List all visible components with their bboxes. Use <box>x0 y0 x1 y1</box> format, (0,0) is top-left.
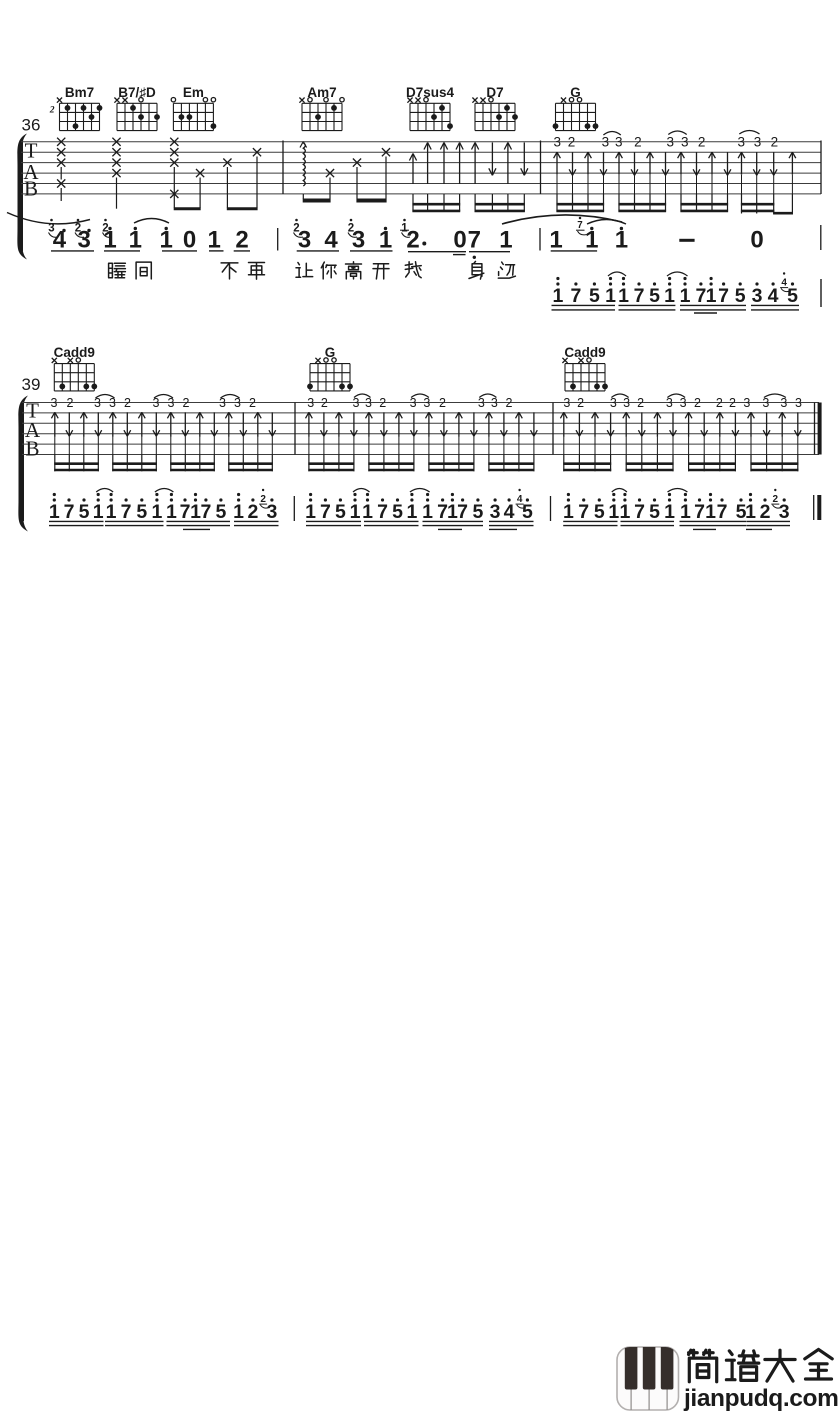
svg-text:7: 7 <box>121 501 132 523</box>
svg-text:3: 3 <box>680 396 687 410</box>
svg-text:Bm7: Bm7 <box>65 85 94 100</box>
svg-text:7: 7 <box>180 501 191 523</box>
svg-text:3: 3 <box>266 501 277 523</box>
svg-text:2: 2 <box>634 134 642 149</box>
svg-text:B: B <box>25 437 39 461</box>
svg-text:0: 0 <box>183 227 196 254</box>
svg-text:5: 5 <box>787 285 798 307</box>
svg-text:3: 3 <box>234 396 241 410</box>
svg-text:2: 2 <box>348 223 354 235</box>
svg-text:5: 5 <box>649 285 660 307</box>
svg-text:1: 1 <box>151 501 162 523</box>
svg-text:7: 7 <box>200 501 211 523</box>
svg-text:2: 2 <box>183 396 190 410</box>
svg-text:5: 5 <box>472 501 483 523</box>
svg-text:1: 1 <box>615 227 628 254</box>
svg-text:5: 5 <box>392 501 403 523</box>
svg-text:7: 7 <box>578 501 589 523</box>
svg-text:1: 1 <box>664 285 675 307</box>
svg-text:3: 3 <box>667 134 675 149</box>
svg-text:2: 2 <box>49 105 55 115</box>
svg-text:1: 1 <box>605 285 616 307</box>
svg-text:1: 1 <box>705 501 716 523</box>
svg-text:3: 3 <box>491 396 498 410</box>
svg-text:3: 3 <box>615 134 623 149</box>
svg-text:2: 2 <box>260 494 266 505</box>
svg-text:5: 5 <box>522 501 533 523</box>
svg-text:3: 3 <box>752 285 763 307</box>
svg-text:3: 3 <box>478 396 485 410</box>
svg-text:1: 1 <box>350 501 361 523</box>
svg-text:3: 3 <box>94 396 101 410</box>
svg-text:1: 1 <box>680 285 691 307</box>
svg-text:2: 2 <box>379 396 386 410</box>
svg-text:2: 2 <box>67 396 74 410</box>
svg-text:1: 1 <box>706 285 717 307</box>
svg-text:2: 2 <box>321 396 328 410</box>
svg-text:3: 3 <box>353 396 360 410</box>
svg-text:2: 2 <box>577 396 584 410</box>
svg-text:2: 2 <box>293 223 299 235</box>
svg-text:D7sus4: D7sus4 <box>406 85 455 100</box>
svg-text:7: 7 <box>320 501 331 523</box>
svg-text:2: 2 <box>771 134 779 149</box>
svg-text:3: 3 <box>779 501 790 523</box>
svg-text:3: 3 <box>780 396 787 410</box>
svg-text:5: 5 <box>136 501 147 523</box>
svg-text:3: 3 <box>795 396 802 410</box>
svg-text:Cadd9: Cadd9 <box>564 345 605 360</box>
svg-text:1: 1 <box>379 227 392 254</box>
svg-text:7: 7 <box>570 285 581 307</box>
svg-text:3: 3 <box>563 396 570 410</box>
svg-text:Em: Em <box>183 85 204 100</box>
svg-text:4: 4 <box>781 278 787 289</box>
svg-text:1: 1 <box>93 501 104 523</box>
svg-text:7: 7 <box>634 501 645 523</box>
svg-text:7: 7 <box>457 501 468 523</box>
svg-text:3: 3 <box>743 396 750 410</box>
svg-text:5: 5 <box>79 501 90 523</box>
svg-text:3: 3 <box>602 134 610 149</box>
svg-text:1: 1 <box>233 501 244 523</box>
svg-text:2: 2 <box>124 396 131 410</box>
svg-text:2: 2 <box>235 227 248 254</box>
svg-text:2: 2 <box>102 223 108 235</box>
svg-text:1: 1 <box>664 501 675 523</box>
svg-text:5: 5 <box>735 285 746 307</box>
svg-text:7: 7 <box>64 501 75 523</box>
svg-text:T: T <box>25 139 38 163</box>
svg-text:36: 36 <box>22 116 41 135</box>
svg-text:5: 5 <box>589 285 600 307</box>
svg-text:B7/♯D: B7/♯D <box>118 85 156 100</box>
svg-text:2: 2 <box>249 396 256 410</box>
svg-text:2: 2 <box>773 494 779 505</box>
svg-text:5: 5 <box>335 501 346 523</box>
svg-text:1: 1 <box>549 227 562 254</box>
svg-text:4: 4 <box>324 227 338 254</box>
svg-text:1: 1 <box>422 501 433 523</box>
svg-text:1: 1 <box>190 501 201 523</box>
svg-text:3: 3 <box>307 396 314 410</box>
svg-text:2: 2 <box>75 223 81 235</box>
svg-text:2: 2 <box>716 396 723 410</box>
svg-text:2: 2 <box>506 396 513 410</box>
svg-text:1: 1 <box>745 501 756 523</box>
svg-text:3: 3 <box>410 396 417 410</box>
svg-text:3: 3 <box>738 134 746 149</box>
svg-text:1: 1 <box>49 501 60 523</box>
svg-text:3: 3 <box>490 501 501 523</box>
svg-text:3: 3 <box>153 396 160 410</box>
svg-text:0: 0 <box>453 227 466 254</box>
svg-text:7: 7 <box>694 501 705 523</box>
svg-text:3: 3 <box>762 396 769 410</box>
svg-text:4: 4 <box>504 501 515 523</box>
svg-text:2: 2 <box>568 134 576 149</box>
svg-text:1: 1 <box>563 501 574 523</box>
svg-text:1: 1 <box>499 227 512 254</box>
svg-text:1: 1 <box>619 501 630 523</box>
svg-text:1: 1 <box>208 227 221 254</box>
svg-text:2: 2 <box>729 396 736 410</box>
svg-text:Cadd9: Cadd9 <box>54 345 95 360</box>
svg-text:3: 3 <box>51 396 58 410</box>
svg-text:1: 1 <box>106 501 117 523</box>
svg-text:0: 0 <box>750 227 763 254</box>
svg-text:2: 2 <box>694 396 701 410</box>
svg-text:3: 3 <box>365 396 372 410</box>
svg-text:1: 1 <box>680 501 691 523</box>
svg-text:B: B <box>24 177 38 201</box>
svg-text:7: 7 <box>377 501 388 523</box>
svg-text:1: 1 <box>585 227 598 254</box>
svg-text:1: 1 <box>305 501 316 523</box>
svg-text:2: 2 <box>247 501 258 523</box>
svg-text:3: 3 <box>168 396 175 410</box>
svg-text:3: 3 <box>610 396 617 410</box>
svg-text:1: 1 <box>618 285 629 307</box>
svg-text:D7: D7 <box>486 85 503 100</box>
svg-text:2: 2 <box>637 396 644 410</box>
svg-text:1: 1 <box>166 501 177 523</box>
svg-text:3: 3 <box>219 396 226 410</box>
svg-text:7: 7 <box>468 227 481 254</box>
svg-text:3: 3 <box>666 396 673 410</box>
svg-text:1: 1 <box>552 285 563 307</box>
svg-text:7: 7 <box>634 285 645 307</box>
svg-text:3: 3 <box>754 134 762 149</box>
svg-text:3: 3 <box>423 396 430 410</box>
svg-text:3: 3 <box>623 396 630 410</box>
svg-text:5: 5 <box>649 501 660 523</box>
svg-text:1: 1 <box>362 501 373 523</box>
svg-text:39: 39 <box>22 375 41 394</box>
svg-text:5: 5 <box>215 501 226 523</box>
svg-text:3: 3 <box>298 227 311 254</box>
svg-text:1: 1 <box>406 501 417 523</box>
svg-text:2: 2 <box>698 134 706 149</box>
svg-text:3: 3 <box>681 134 689 149</box>
svg-text:7: 7 <box>718 285 729 307</box>
svg-text:3: 3 <box>109 396 116 410</box>
svg-text:7: 7 <box>717 501 728 523</box>
svg-text:2: 2 <box>760 501 771 523</box>
svg-text:5: 5 <box>594 501 605 523</box>
svg-text:4: 4 <box>768 285 779 307</box>
svg-text:1: 1 <box>608 501 619 523</box>
svg-text:1: 1 <box>129 227 142 254</box>
svg-text:jianpudq.com: jianpudq.com <box>683 1385 838 1412</box>
svg-text:2: 2 <box>439 396 446 410</box>
svg-text:4: 4 <box>517 494 523 505</box>
svg-text:1: 1 <box>401 223 408 235</box>
svg-text:7: 7 <box>577 220 583 231</box>
svg-text:1: 1 <box>160 227 173 254</box>
svg-text:3: 3 <box>553 134 561 149</box>
